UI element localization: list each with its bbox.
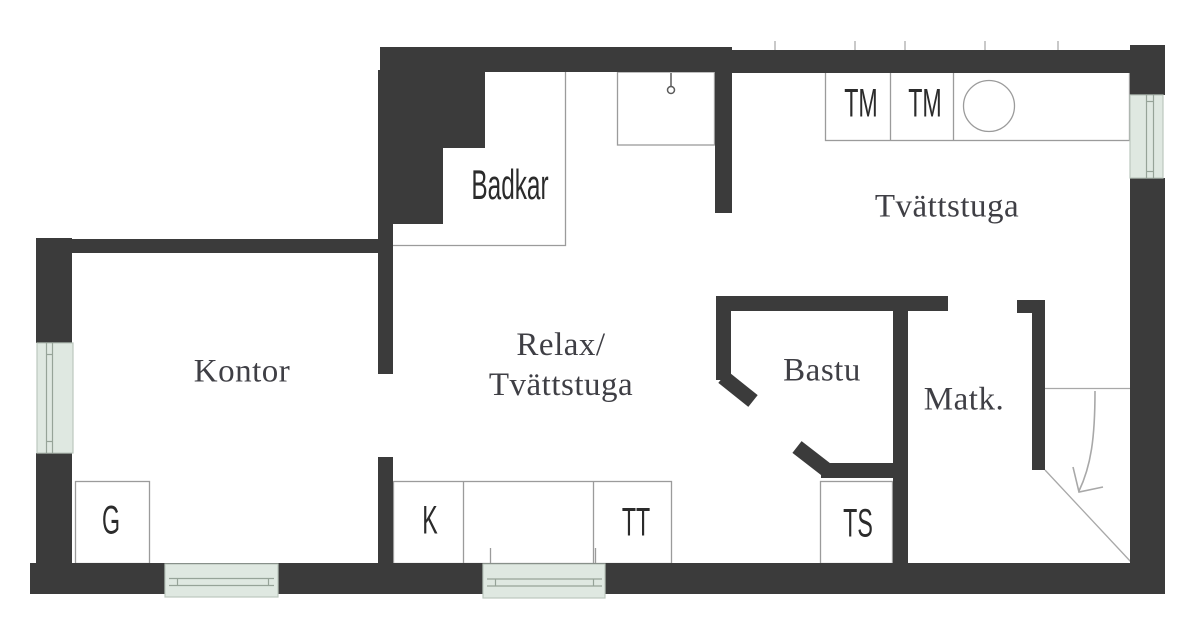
- window-bottom-mid: [483, 564, 605, 598]
- label-wardrobe-g: G: [102, 499, 120, 544]
- label-dryer-tt: TT: [622, 501, 650, 546]
- wall: [715, 50, 732, 213]
- shower-outline: [618, 72, 715, 145]
- staircase: [1045, 389, 1131, 563]
- wall: [1130, 45, 1165, 95]
- room-label-kontor: Kontor: [194, 354, 291, 391]
- window-bottom-left: [165, 564, 278, 597]
- wall: [36, 453, 72, 565]
- label-cabinet-k: K: [422, 499, 437, 544]
- fixture-outlines: [76, 72, 1130, 564]
- wall: [36, 238, 72, 343]
- room-label-relax-line2: Tvättstuga: [489, 365, 633, 405]
- faint-top-marks: [775, 41, 1058, 51]
- window-right: [1130, 95, 1163, 178]
- label-washing-machine-tm-2: TM: [908, 82, 942, 127]
- wall-diagonal: [797, 447, 828, 471]
- window-left: [37, 343, 73, 453]
- wall: [716, 296, 731, 380]
- wall: [1130, 178, 1165, 565]
- room-label-bastu: Bastu: [783, 353, 861, 390]
- label-badkar: Badkar: [471, 161, 548, 209]
- floor-plan-drawing: [0, 0, 1198, 626]
- label-drying-cabinet-ts: TS: [843, 502, 873, 547]
- wall: [378, 457, 393, 564]
- floor-plan: Kontor Relax/ Tvättstuga Tvättstuga Bast…: [0, 0, 1198, 626]
- wall: [1032, 300, 1045, 470]
- room-label-relax-line1: Relax/: [489, 325, 633, 365]
- walls: [30, 45, 1165, 594]
- wall: [382, 148, 443, 224]
- room-label-tvattstuga: Tvättstuga: [875, 189, 1019, 226]
- room-label-relax: Relax/ Tvättstuga: [489, 325, 633, 405]
- wall: [716, 296, 948, 311]
- wall-diagonal: [723, 377, 753, 401]
- wall: [36, 239, 380, 253]
- stairs-down-arrow-icon: [1073, 391, 1103, 492]
- sink-basin-icon: [964, 81, 1015, 132]
- wall: [1017, 300, 1045, 313]
- room-label-matk: Matk.: [924, 382, 1004, 419]
- wall: [893, 296, 908, 564]
- wall: [732, 50, 1165, 73]
- shower-head-icon: [668, 73, 675, 94]
- stair-diagonal-line: [1045, 470, 1131, 562]
- label-washing-machine-tm-1: TM: [844, 82, 878, 127]
- wall: [382, 70, 485, 148]
- wall: [380, 47, 732, 72]
